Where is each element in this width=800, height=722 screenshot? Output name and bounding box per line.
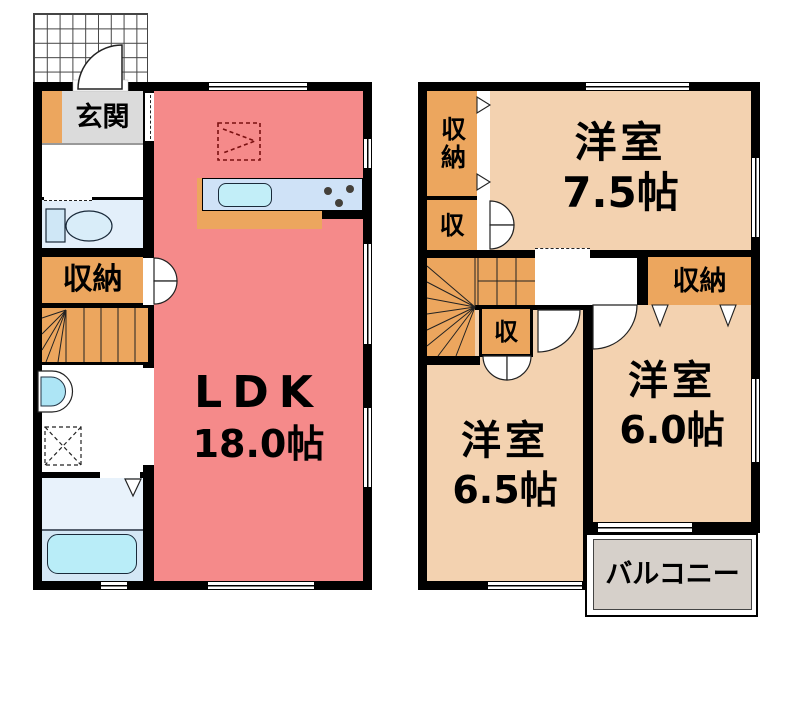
closet-floor1: 収納 bbox=[42, 257, 143, 303]
window bbox=[207, 581, 315, 590]
window bbox=[363, 243, 372, 345]
room-60-size-label: 6.0帖 bbox=[619, 411, 724, 449]
kitchen-sink-icon bbox=[218, 183, 272, 207]
room-75-label-block: 洋室 7.5帖 bbox=[490, 95, 751, 240]
closet-mid: 収 bbox=[479, 306, 533, 357]
closet-right: 収納 bbox=[648, 257, 751, 305]
washroom bbox=[42, 365, 143, 472]
closet-mid-label: 収 bbox=[494, 320, 518, 344]
staircase-floor2-upper bbox=[427, 258, 535, 305]
window bbox=[597, 522, 693, 533]
closet-tall-label: 収納 bbox=[440, 116, 465, 172]
room-60-label-block: 洋室 6.0帖 bbox=[593, 335, 751, 475]
closet-floor1-label: 収納 bbox=[63, 265, 123, 295]
room-75-size-label: 7.5帖 bbox=[562, 172, 678, 214]
stairs-wall-stub bbox=[418, 356, 480, 365]
staircase-floor1 bbox=[42, 308, 148, 362]
room-ldk bbox=[154, 91, 363, 581]
closet-left-small: 収 bbox=[427, 200, 477, 250]
window bbox=[363, 407, 372, 488]
entrance-label: 玄関 bbox=[76, 104, 130, 131]
closet-left-label: 収 bbox=[439, 213, 464, 238]
ldk-label-block: LDK 18.0帖 bbox=[154, 352, 363, 482]
entrance-hall bbox=[42, 144, 143, 197]
bathroom-upper bbox=[42, 478, 143, 530]
hall-floor2 bbox=[535, 258, 637, 305]
room-65-label-block: 洋室 6.5帖 bbox=[427, 395, 583, 535]
room-75-label: 洋室 bbox=[574, 122, 666, 164]
entrance-porch-tiles bbox=[33, 13, 148, 85]
bathtub-icon bbox=[47, 534, 137, 574]
ldk-label: LDK bbox=[194, 371, 323, 415]
bathroom-door-gap bbox=[100, 472, 140, 478]
window bbox=[585, 82, 690, 91]
entrance-pocket-door bbox=[145, 93, 154, 141]
window bbox=[487, 581, 583, 590]
room-65-label: 洋室 bbox=[461, 421, 549, 461]
entrance-step bbox=[42, 91, 62, 144]
window bbox=[208, 82, 308, 91]
balcony-label: バルコニー bbox=[605, 561, 739, 588]
window bbox=[751, 378, 760, 463]
staircase-floor2-winder bbox=[427, 305, 475, 356]
window bbox=[100, 581, 128, 590]
kitchen-wall-strip bbox=[322, 211, 363, 219]
room-75-sliding-door bbox=[535, 248, 590, 258]
floor-plan: 玄関 収納 LDK 18.0帖 bbox=[0, 0, 800, 722]
closet-tall: 収納 bbox=[427, 91, 477, 196]
room-60-label: 洋室 bbox=[628, 361, 716, 401]
window bbox=[363, 138, 372, 169]
toilet-room bbox=[42, 200, 143, 248]
balcony: バルコニー bbox=[593, 539, 752, 610]
bathroom-divider bbox=[42, 529, 143, 531]
room-entrance: 玄関 bbox=[62, 91, 143, 144]
washroom-opening bbox=[143, 368, 154, 465]
closet-floor1-door-gap bbox=[143, 258, 154, 305]
room-65-size-label: 6.5帖 bbox=[452, 471, 557, 509]
entrance-hall-divider bbox=[42, 143, 143, 145]
toilet-sliding-door bbox=[44, 195, 92, 201]
window bbox=[751, 157, 760, 238]
closet-right-label: 収納 bbox=[673, 268, 727, 295]
closet-door-strip bbox=[477, 91, 490, 250]
ldk-size-label: 18.0帖 bbox=[193, 425, 325, 463]
